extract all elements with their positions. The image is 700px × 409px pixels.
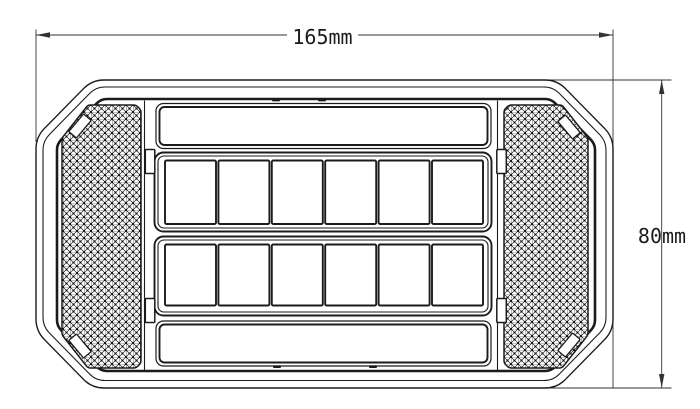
seam-mark: [318, 99, 326, 102]
height-dimension-label: 80mm: [630, 224, 694, 249]
drawing-canvas: 165mm 80mm: [0, 0, 700, 409]
mounting-clip: [145, 299, 155, 323]
seam-mark: [369, 365, 377, 368]
led-cell: [325, 161, 376, 225]
led-cell: [432, 161, 483, 225]
width-dim-arrow-right: [599, 32, 613, 37]
led-cell: [272, 245, 323, 306]
width-dim-arrow-left: [36, 32, 50, 37]
width-dimension-label: 165mm: [287, 25, 358, 50]
led-cell: [272, 161, 323, 225]
led-cell: [165, 245, 216, 306]
reflector-left: [62, 105, 141, 368]
seam-mark: [273, 365, 281, 368]
led-cell: [218, 245, 269, 306]
height-dim-arrow-bottom: [659, 374, 664, 388]
led-cell: [325, 245, 376, 306]
lens-bar-bottom: [156, 321, 491, 366]
mounting-clip: [497, 299, 507, 323]
lens-bar-bottom-inner: [160, 325, 488, 363]
mounting-clip: [145, 150, 155, 174]
technical-drawing: [0, 0, 700, 409]
height-dim-arrow-top: [659, 80, 664, 94]
led-cell: [379, 161, 430, 225]
led-cell: [218, 161, 269, 225]
led-cell: [165, 161, 216, 225]
seam-mark: [272, 99, 280, 102]
lens-bar-top: [156, 104, 491, 149]
lens-bar-top-inner: [160, 107, 488, 145]
lamp-body: [36, 80, 613, 388]
mounting-clip: [497, 150, 507, 174]
reflector-right: [504, 105, 588, 368]
led-cell: [432, 245, 483, 306]
led-cell: [379, 245, 430, 306]
